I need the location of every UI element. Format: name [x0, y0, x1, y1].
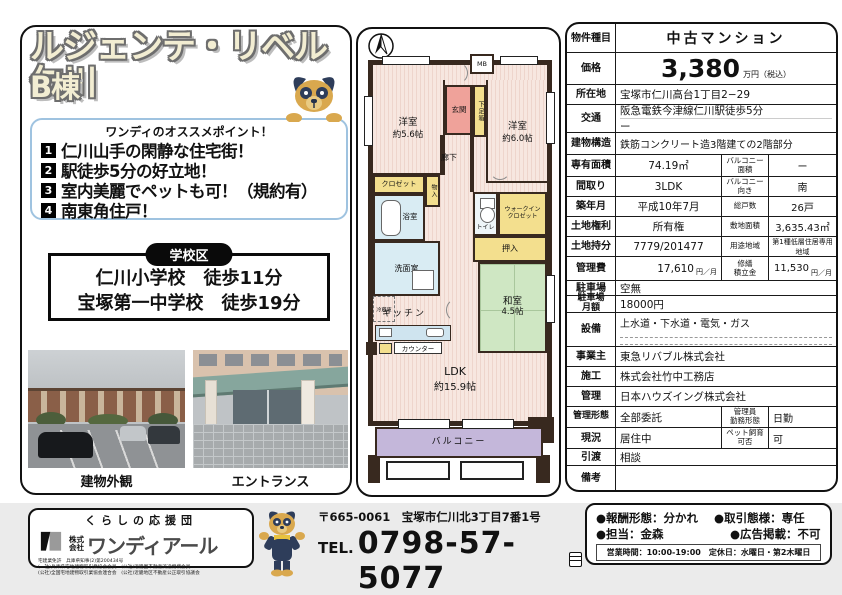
room-name: 下足箱 — [476, 101, 483, 122]
row-value: 居住中 — [616, 428, 721, 448]
company-prefix: 株式 会社 — [69, 536, 84, 552]
row-value: 東急リバブル株式会社 — [616, 347, 836, 366]
room-closet: クロゼット — [373, 175, 425, 194]
row-unit: 円／月 — [696, 267, 717, 279]
row-value: 74.19㎡ — [616, 155, 721, 176]
washstand-icon — [412, 270, 434, 290]
room-name: 洋室 — [508, 118, 527, 132]
table-row: 駐車場 月額 18000円 — [567, 295, 836, 312]
row-value: 日本ハウズイング株式会社 — [616, 387, 836, 406]
table-row: 間取り 3LDK バルコニー 向き 南 — [567, 176, 836, 196]
tel-label: TEL. — [318, 539, 354, 557]
point-number: 3 — [41, 183, 56, 198]
table-row-price: 価格 3,380 万円（税込） — [567, 52, 836, 84]
mascot-dog-icon — [286, 70, 342, 122]
railing-post — [368, 455, 380, 483]
row-value: 上水道・下水道・電気・ガス — [620, 315, 832, 330]
school-line: 仁川小学校 徒歩11分 — [51, 266, 327, 291]
stove-icon — [379, 328, 392, 337]
ldk-label: LDK 約15.9帖 — [415, 365, 495, 393]
room-oshiire: 押入 — [473, 236, 547, 262]
fee-type: ●報酬形態：分かれ — [596, 510, 698, 526]
room-name: バルコニー — [432, 437, 487, 447]
row-sublabel: バルコニー 面積 — [721, 155, 769, 176]
table-row: 専有面積 74.19㎡ バルコニー 面積 ー — [567, 154, 836, 176]
table-row: 施工 株式会社竹中工務店 — [567, 366, 836, 386]
window — [382, 56, 430, 65]
license-text: (公社)全国宅地建物取引業協会連合会 (公社)近畿地区不動産公正取引協議会 — [38, 571, 252, 576]
row-value: 阪急電鉄今津線仁川駅徒歩5分 — [620, 103, 832, 118]
point-item: 3 室内美麗でペットも可！（規約有） — [32, 180, 346, 200]
row-label: 建物構造 — [567, 133, 616, 154]
row-value: 18000円 — [616, 296, 836, 312]
row-subvalue: 26戸 — [769, 197, 836, 216]
row-label: 所在地 — [567, 85, 616, 104]
window — [398, 419, 450, 429]
room-senmen: 洗面室 — [373, 241, 440, 296]
license-text: 宅建業免許 兵庫県知事(2)第200434号 — [38, 559, 252, 564]
room-genkan: 玄関 — [445, 85, 473, 135]
row-subvalue: 3,635.43㎡ — [769, 217, 836, 236]
row-sublabel: バルコニー 向き — [721, 177, 769, 196]
company-slogan: くらしの応援団 — [30, 512, 252, 528]
photo-caption: エントランス — [193, 471, 348, 490]
row-unit: 円／月 — [811, 268, 832, 280]
room-size: 4.5帖 — [501, 308, 523, 318]
room-name: クロゼット — [382, 180, 417, 188]
room-name: 押入 — [502, 244, 518, 253]
table-row: 現況 居住中 ペット飼育 可否 可 — [567, 427, 836, 448]
table-row: 土地持分 7779/201477 用途地域 第1種低層住居専用地域 — [567, 236, 836, 256]
company-address: 〒665-0061 宝塚市仁川北3丁目7番1号 — [318, 509, 580, 525]
table-row: 管理 日本ハウズイング株式会社 — [567, 386, 836, 406]
fax-icon — [569, 552, 582, 567]
row-label: 専有面積 — [567, 155, 616, 176]
row-subvalue: 南 — [769, 177, 836, 196]
kitchen-counter — [375, 325, 451, 341]
row-label: 価格 — [567, 53, 616, 84]
point-number: 2 — [41, 163, 56, 178]
price-value: 3,380 — [661, 54, 740, 83]
table-row: 備考 — [567, 465, 836, 490]
point-text: 南東角住戸！ — [61, 198, 157, 222]
row-value: 中古マンション — [616, 24, 836, 52]
school-district-box: 学校区 仁川小学校 徒歩11分 宝塚第一中学校 徒歩19分 — [48, 253, 330, 321]
room-name: LDK — [415, 365, 495, 378]
room-washitsu: 和室 4.5帖 — [478, 262, 547, 353]
room-shoebox: 下足箱 — [473, 85, 486, 137]
row-sublabel: 総戸数 — [721, 197, 769, 216]
table-row: 建物構造 鉄筋コンクリート造3階建ての2階部分 — [567, 132, 836, 154]
row-value: 相談 — [616, 449, 836, 465]
divider — [620, 330, 832, 338]
corridor-label: 廊下 — [441, 152, 457, 163]
row-sublabel: 用途地域 — [721, 237, 769, 256]
row-label: 現況 — [567, 428, 616, 448]
room-name: 物入 — [429, 184, 436, 198]
row-value: 平成10年7月 — [616, 197, 721, 216]
row-label: 物件種目 — [567, 24, 616, 52]
room-name: 洋室 — [398, 114, 417, 128]
table-row: 所在地 宝塚市仁川高台1丁目2−29 — [567, 84, 836, 104]
flyer-page: ルジェンテ・リベル仁川 B棟 ワンディのオススメポイント！ 1 仁川山手の閑静な… — [0, 0, 842, 595]
table-row: 管理費 17,610 円／月 修繕 積立金 11,530 円／月 — [567, 256, 836, 280]
company-logo-icon — [38, 529, 64, 559]
license-text: (一社)兵庫県宅地建物取引業協会会員 (公社)近畿圏不動産流通機構会員 — [38, 565, 252, 570]
mascot-dog-icon — [258, 506, 306, 578]
row-value: 所有権 — [616, 217, 721, 236]
row-subvalue: 第1種低層住居専用地域 — [769, 237, 836, 256]
room-toilet: トイレ — [473, 192, 498, 236]
row-label: 引渡 — [567, 449, 616, 465]
school-district-label: 学校区 — [145, 243, 232, 266]
point-number: 4 — [41, 203, 56, 218]
wall-stub — [366, 342, 377, 355]
table-row: 事業主 東急リバブル株式会社 — [567, 346, 836, 366]
row-value — [616, 466, 836, 490]
row-label: 管理 — [567, 387, 616, 406]
photo-building-exterior — [28, 350, 185, 468]
row-value: 宝塚市仁川高台1丁目2−29 — [616, 85, 836, 104]
room-size: 約6.0帖 — [502, 132, 533, 144]
window — [546, 92, 555, 144]
row-label: 事業主 — [567, 347, 616, 366]
table-row: 駐車場 空無 — [567, 280, 836, 295]
company-name: ワンディアール — [87, 530, 217, 559]
railing — [386, 461, 450, 480]
school-line: 宝塚第一中学校 徒歩19分 — [51, 291, 327, 316]
price-unit: 万円（税込） — [743, 69, 791, 83]
table-row: 物件種目 中古マンション — [567, 24, 836, 52]
railing — [460, 461, 524, 480]
table-row: 交通 阪急電鉄今津線仁川駅徒歩5分 ー — [567, 104, 836, 132]
row-sublabel: 管理員 勤務形態 — [721, 407, 769, 427]
wall-stub — [470, 85, 474, 192]
window — [500, 56, 538, 65]
room-size: 約5.6帖 — [393, 128, 424, 140]
cabinet-box — [379, 343, 392, 354]
railing-post — [536, 455, 550, 483]
window — [364, 96, 373, 146]
row-value: 空無 — [616, 281, 836, 295]
room-name: 浴室 — [403, 213, 418, 222]
row-label: 築年月 — [567, 197, 616, 216]
row-label: 土地持分 — [567, 237, 616, 256]
door-arc — [490, 160, 510, 180]
recommend-points-box: ワンディのオススメポイント！ 1 仁川山手の閑静な住宅街！ 2 駅徒歩5分の好立… — [30, 118, 348, 220]
transaction-type: ●取引態様：専任 — [714, 510, 805, 526]
counter-label: カウンター — [402, 343, 435, 353]
deal-info-box: ●報酬形態：分かれ ●取引態様：専任 ●担当：金森 ●広告掲載：不可 営業時間：… — [585, 503, 832, 565]
row-subvalue: ー — [769, 155, 836, 176]
row-sublabel: 修繕 積立金 — [721, 257, 769, 280]
table-row: 築年月 平成10年7月 総戸数 26戸 — [567, 196, 836, 216]
row-label: 土地権利 — [567, 217, 616, 236]
window — [462, 419, 514, 429]
tel-number: 0798-57-5077 — [358, 526, 580, 595]
point-item: 1 仁川山手の閑静な住宅街！ — [32, 140, 346, 160]
row-label: 駐車場 月額 — [567, 296, 616, 312]
table-row: 引渡 相談 — [567, 448, 836, 465]
agent-name: ●担当：金森 — [596, 526, 714, 542]
point-number: 1 — [41, 143, 56, 158]
room-name: ウォークイン クロゼット — [504, 207, 540, 221]
contact-block: 〒665-0061 宝塚市仁川北3丁目7番1号 TEL. 0798-57-507… — [318, 509, 580, 595]
row-label: 管理形態 — [567, 407, 616, 427]
mb-label: MB — [477, 60, 487, 68]
table-row: 設備 上水道・下水道・電気・ガス — [567, 312, 836, 346]
balcony: バルコニー — [375, 427, 543, 458]
ad-permission: ●広告掲載：不可 — [730, 526, 821, 542]
door-arc — [446, 298, 470, 322]
row-label: 管理費 — [567, 257, 616, 280]
table-row: 土地権利 所有権 敷地面積 3,635.43㎡ — [567, 216, 836, 236]
point-item: 4 南東角住戸！ — [32, 200, 346, 220]
room-size: 約15.9帖 — [415, 378, 495, 393]
room-bath: 浴室 — [373, 194, 425, 241]
bathtub-icon — [381, 200, 401, 236]
table-row: 管理形態 全部委託 管理員 勤務形態 日勤 — [567, 406, 836, 427]
row-value: 17,610 — [657, 263, 694, 275]
row-label: 備考 — [567, 466, 616, 490]
photo-caption: 建物外観 — [28, 471, 185, 490]
sink-icon — [426, 328, 444, 337]
property-spec-table: 物件種目 中古マンション 価格 3,380 万円（税込） 所在地 宝塚市仁川高台… — [565, 22, 838, 492]
room-monoire: 物入 — [425, 175, 440, 207]
row-label: 交通 — [567, 105, 616, 132]
row-label: 施工 — [567, 367, 616, 386]
row-value: 株式会社竹中工務店 — [616, 367, 836, 386]
divider — [620, 338, 832, 346]
row-value: 7779/201477 — [616, 237, 721, 256]
row-sublabel: 敷地面積 — [721, 217, 769, 236]
window — [546, 275, 555, 323]
row-sublabel: ペット飼育 可否 — [721, 428, 769, 448]
business-hours: 営業時間：10:00-19:00 定休日：水曜日・第2木曜日 — [596, 544, 821, 561]
counter-label-box: カウンター — [394, 342, 442, 354]
row-label: 間取り — [567, 177, 616, 196]
row-value: 鉄筋コンクリート造3階建ての2階部分 — [616, 133, 836, 154]
company-box: くらしの応援団 株式 会社 ワンディアール 宅建業免許 兵庫県知事(2)第200… — [28, 508, 254, 568]
room-name: トイレ — [476, 225, 494, 232]
row-subvalue: 可 — [769, 428, 836, 448]
toilet-icon — [480, 207, 495, 223]
point-item: 2 駅徒歩5分の好立地！ — [32, 160, 346, 180]
room-name: 玄関 — [452, 106, 467, 115]
row-label: 設備 — [567, 313, 616, 346]
row-value: 全部委託 — [616, 407, 721, 427]
room-walkin-closet: ウォークイン クロゼット — [498, 192, 547, 236]
meter-box: MB — [470, 54, 494, 74]
row-value: 3LDK — [616, 177, 721, 196]
row-subvalue: 11,530 — [774, 263, 809, 274]
door-arc — [446, 62, 468, 84]
row-subvalue: 日勤 — [769, 407, 836, 427]
kitchen-label: キッチン — [382, 306, 426, 319]
photo-entrance — [193, 350, 348, 468]
room-west1: 洋室 約5.6帖 — [373, 80, 445, 175]
